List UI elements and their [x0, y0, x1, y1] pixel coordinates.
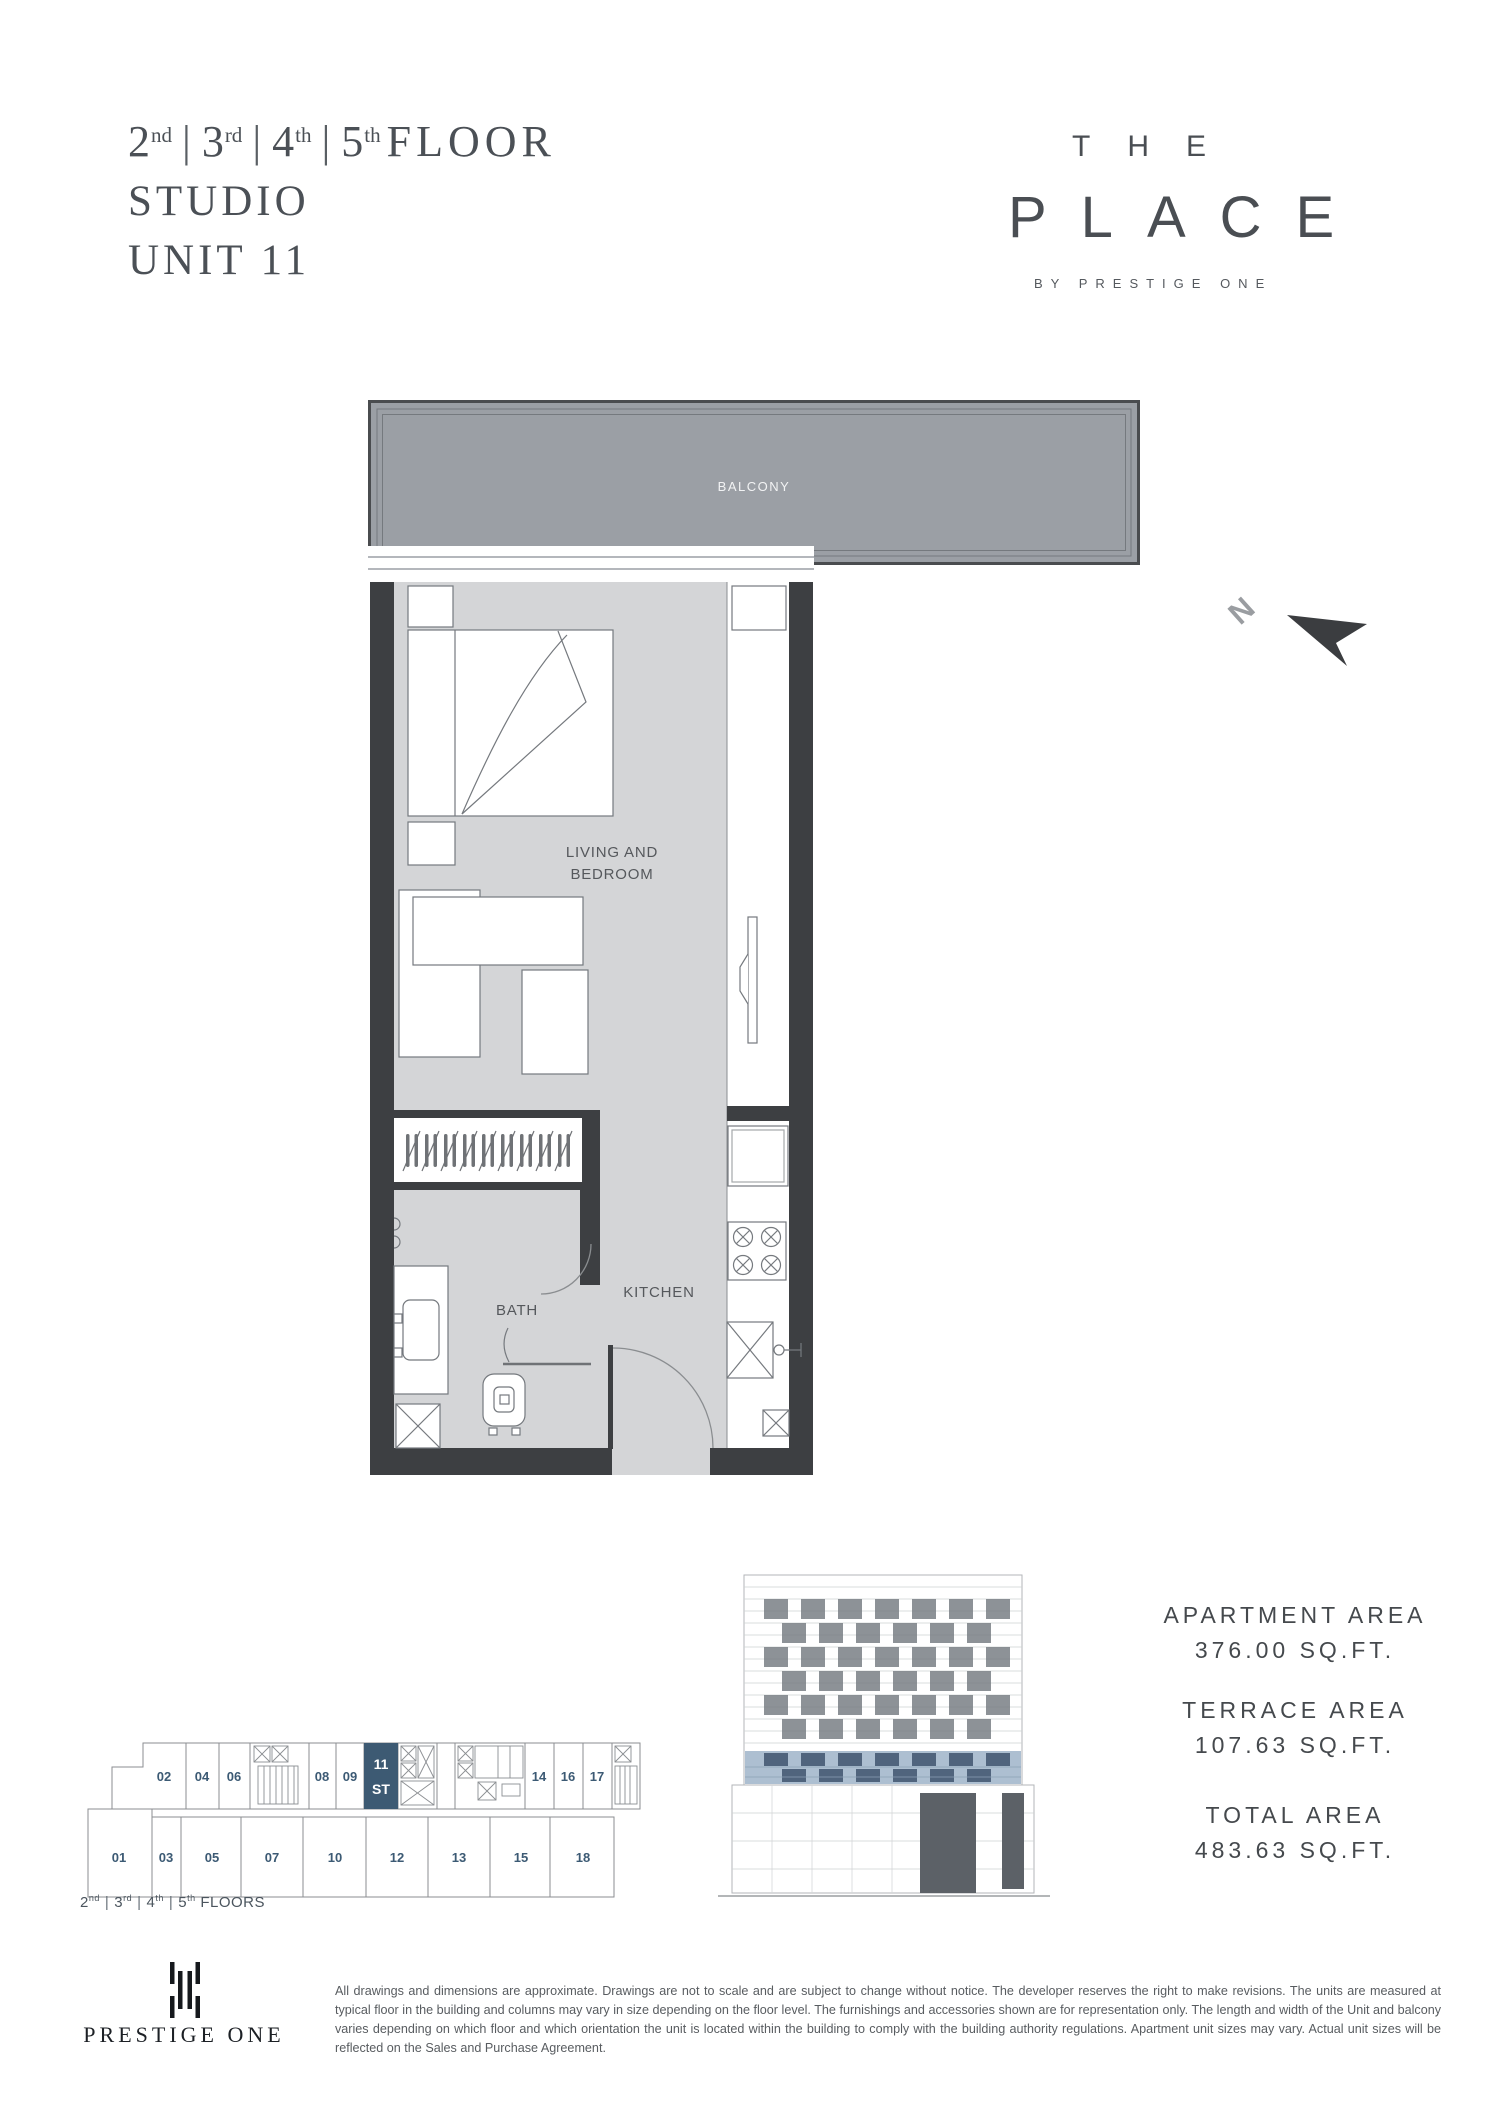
highlight-unit-number: 11 [374, 1756, 389, 1772]
unit-09: 09 [343, 1769, 357, 1784]
unit-16: 16 [561, 1769, 575, 1784]
unit-03: 03 [159, 1850, 173, 1865]
keyplan-caption: 2nd|3rd|4th|5th FLOORS [80, 1893, 265, 1911]
coffee-table [522, 970, 588, 1074]
prestige-one-wordmark: PRESTIGE ONE [78, 2022, 290, 2048]
building-elevation [712, 1565, 1057, 1910]
kitchen-label: KITCHEN [623, 1284, 694, 1301]
terrace-area-label: TERRACE AREA [1140, 1693, 1450, 1728]
apartment-area-label: APARTMENT AREA [1140, 1598, 1450, 1633]
elevation-highlight-floors [745, 1751, 1021, 1784]
bath-label: BATH [496, 1302, 538, 1319]
apartment-area: APARTMENT AREA 376.00 SQ.FT. [1140, 1598, 1450, 1668]
unit-13: 13 [452, 1850, 466, 1865]
unit-02: 02 [157, 1769, 171, 1784]
unit-18: 18 [576, 1850, 590, 1865]
unit-12: 12 [390, 1850, 404, 1865]
unit-04: 04 [195, 1769, 210, 1784]
unit-08: 08 [315, 1769, 329, 1784]
brand-logo-the: THE [1072, 130, 1243, 164]
north-arrow-glyph [1287, 615, 1367, 666]
unit-15: 15 [514, 1850, 528, 1865]
balcony-label: BALCONY [718, 479, 791, 494]
area-summary: APARTMENT AREA 376.00 SQ.FT. TERRACE ARE… [1140, 1598, 1450, 1893]
floor-5: 5 [341, 117, 364, 166]
floor-3: 3 [202, 117, 225, 166]
title-unit-number: UNIT 11 [128, 239, 556, 282]
unit-14: 14 [532, 1769, 547, 1784]
floor-2: 2 [128, 117, 151, 166]
key-plan: 11 ST 02 04 06 08 09 14 16 17 01 03 05 0… [78, 1736, 648, 1906]
unit-05: 05 [205, 1850, 219, 1865]
unit-01: 01 [112, 1850, 126, 1865]
highlight-unit-type: ST [372, 1781, 390, 1797]
nightstand [408, 822, 455, 865]
living-bedroom-label2: BEDROOM [570, 866, 653, 883]
title-floors-line: 2nd|3rd|4th|5thFLOOR [128, 120, 556, 164]
balcony: BALCONY [370, 402, 1139, 564]
unit-10: 10 [328, 1850, 342, 1865]
balcony-sliding-door [368, 546, 814, 583]
total-area-value: 483.63 SQ.FT. [1140, 1833, 1450, 1868]
brochure-page: { "title": { "floors": [ {"n": "2", "s":… [0, 0, 1500, 2120]
north-label: N [1225, 590, 1261, 631]
legal-disclaimer: All drawings and dimensions are approxim… [335, 1982, 1441, 2058]
keyplan-highlight-unit-11: 11 ST [364, 1743, 398, 1809]
title-unit-type: STUDIO [128, 180, 556, 223]
floorplan: BALCONY [365, 398, 1145, 1478]
wardrobe [394, 1118, 582, 1182]
kitchen-counter-strip [727, 582, 789, 1448]
sofa-back [413, 897, 583, 965]
terrace-area-value: 107.63 SQ.FT. [1140, 1728, 1450, 1763]
brand-logo-byline: BY PRESTIGE ONE [1034, 276, 1272, 291]
nightstand [408, 586, 453, 627]
vanity-sink [394, 1266, 448, 1394]
bed [408, 630, 613, 816]
page-title: 2nd|3rd|4th|5thFLOOR STUDIO UNIT 11 [128, 120, 556, 282]
elevation-podium [732, 1785, 1034, 1893]
unit-06: 06 [227, 1769, 241, 1784]
unit-07: 07 [265, 1850, 279, 1865]
unit-17: 17 [590, 1769, 604, 1784]
living-bedroom-label: LIVING AND [566, 844, 658, 861]
entry-threshold [612, 1448, 710, 1475]
apartment-area-value: 376.00 SQ.FT. [1140, 1633, 1450, 1668]
terrace-area: TERRACE AREA 107.63 SQ.FT. [1140, 1693, 1450, 1763]
floor-4: 4 [272, 117, 295, 166]
floor-word: FLOOR [387, 117, 556, 166]
prestige-one-mark [152, 1962, 218, 2018]
north-arrow: N [1225, 575, 1385, 695]
entry-door-leaf [608, 1345, 613, 1449]
total-area-label: TOTAL AREA [1140, 1798, 1450, 1833]
brand-logo-place: PLACE [1008, 184, 1368, 251]
total-area: TOTAL AREA 483.63 SQ.FT. [1140, 1798, 1450, 1868]
